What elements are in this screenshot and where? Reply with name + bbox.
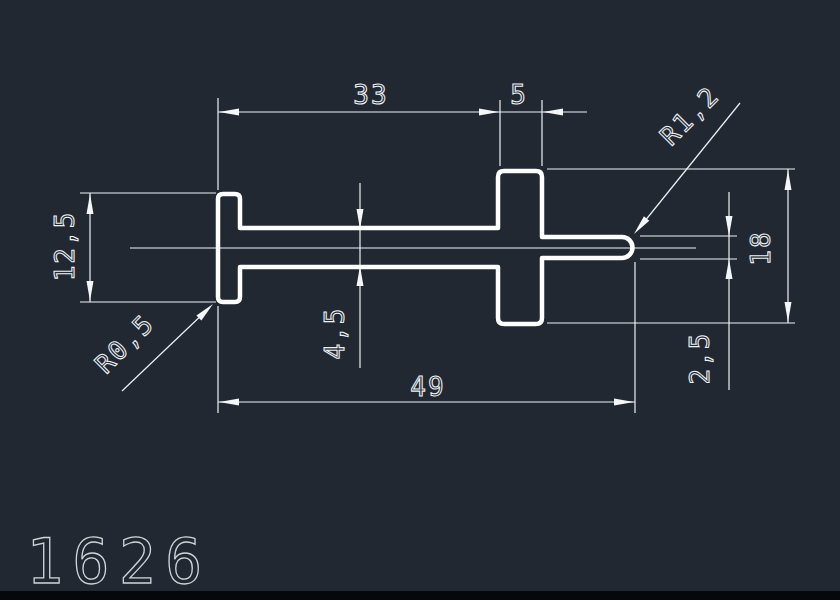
arrow-2_5-bottom: [726, 259, 733, 279]
dimension-lines[interactable]: [90, 103, 788, 402]
dim-label-4_5[interactable]: 4,5: [320, 307, 350, 360]
part-number-label: 1626: [26, 525, 211, 598]
arrow-12_5-top: [87, 194, 94, 214]
dim-label-49[interactable]: 49: [410, 372, 445, 402]
arrow-33-right: [479, 109, 499, 116]
arrow-12_5-bottom: [87, 281, 94, 301]
dimension-labels: 33 5 49 12,5 4,5 18 2,5 R0,5 R1,2: [50, 80, 776, 402]
dim-label-5[interactable]: 5: [510, 80, 528, 110]
dim-label-2_5[interactable]: 2,5: [685, 332, 715, 385]
arrow-leader-r1_2: [634, 216, 649, 234]
drawing-canvas[interactable]: 33 5 49 12,5 4,5 18 2,5 R0,5 R1,2 1626: [0, 0, 840, 600]
dim-label-33[interactable]: 33: [353, 80, 388, 110]
arrow-18-bottom: [785, 302, 792, 322]
arrow-18-top: [785, 170, 792, 190]
arrow-49-left: [219, 399, 239, 406]
arrow-49-right: [614, 399, 634, 406]
dim-label-18[interactable]: 18: [746, 230, 776, 265]
footer-bar: [0, 591, 840, 600]
cad-viewport[interactable]: 33 5 49 12,5 4,5 18 2,5 R0,5 R1,2 1626: [0, 0, 840, 600]
arrow-2_5-top: [726, 216, 733, 236]
dim-label-r1_2[interactable]: R1,2: [654, 80, 725, 151]
arrow-5-right: [543, 109, 563, 116]
arrow-33-left: [219, 109, 239, 116]
dim-label-12_5[interactable]: 12,5: [50, 211, 80, 282]
dim-label-r0_5[interactable]: R0,5: [89, 308, 160, 379]
